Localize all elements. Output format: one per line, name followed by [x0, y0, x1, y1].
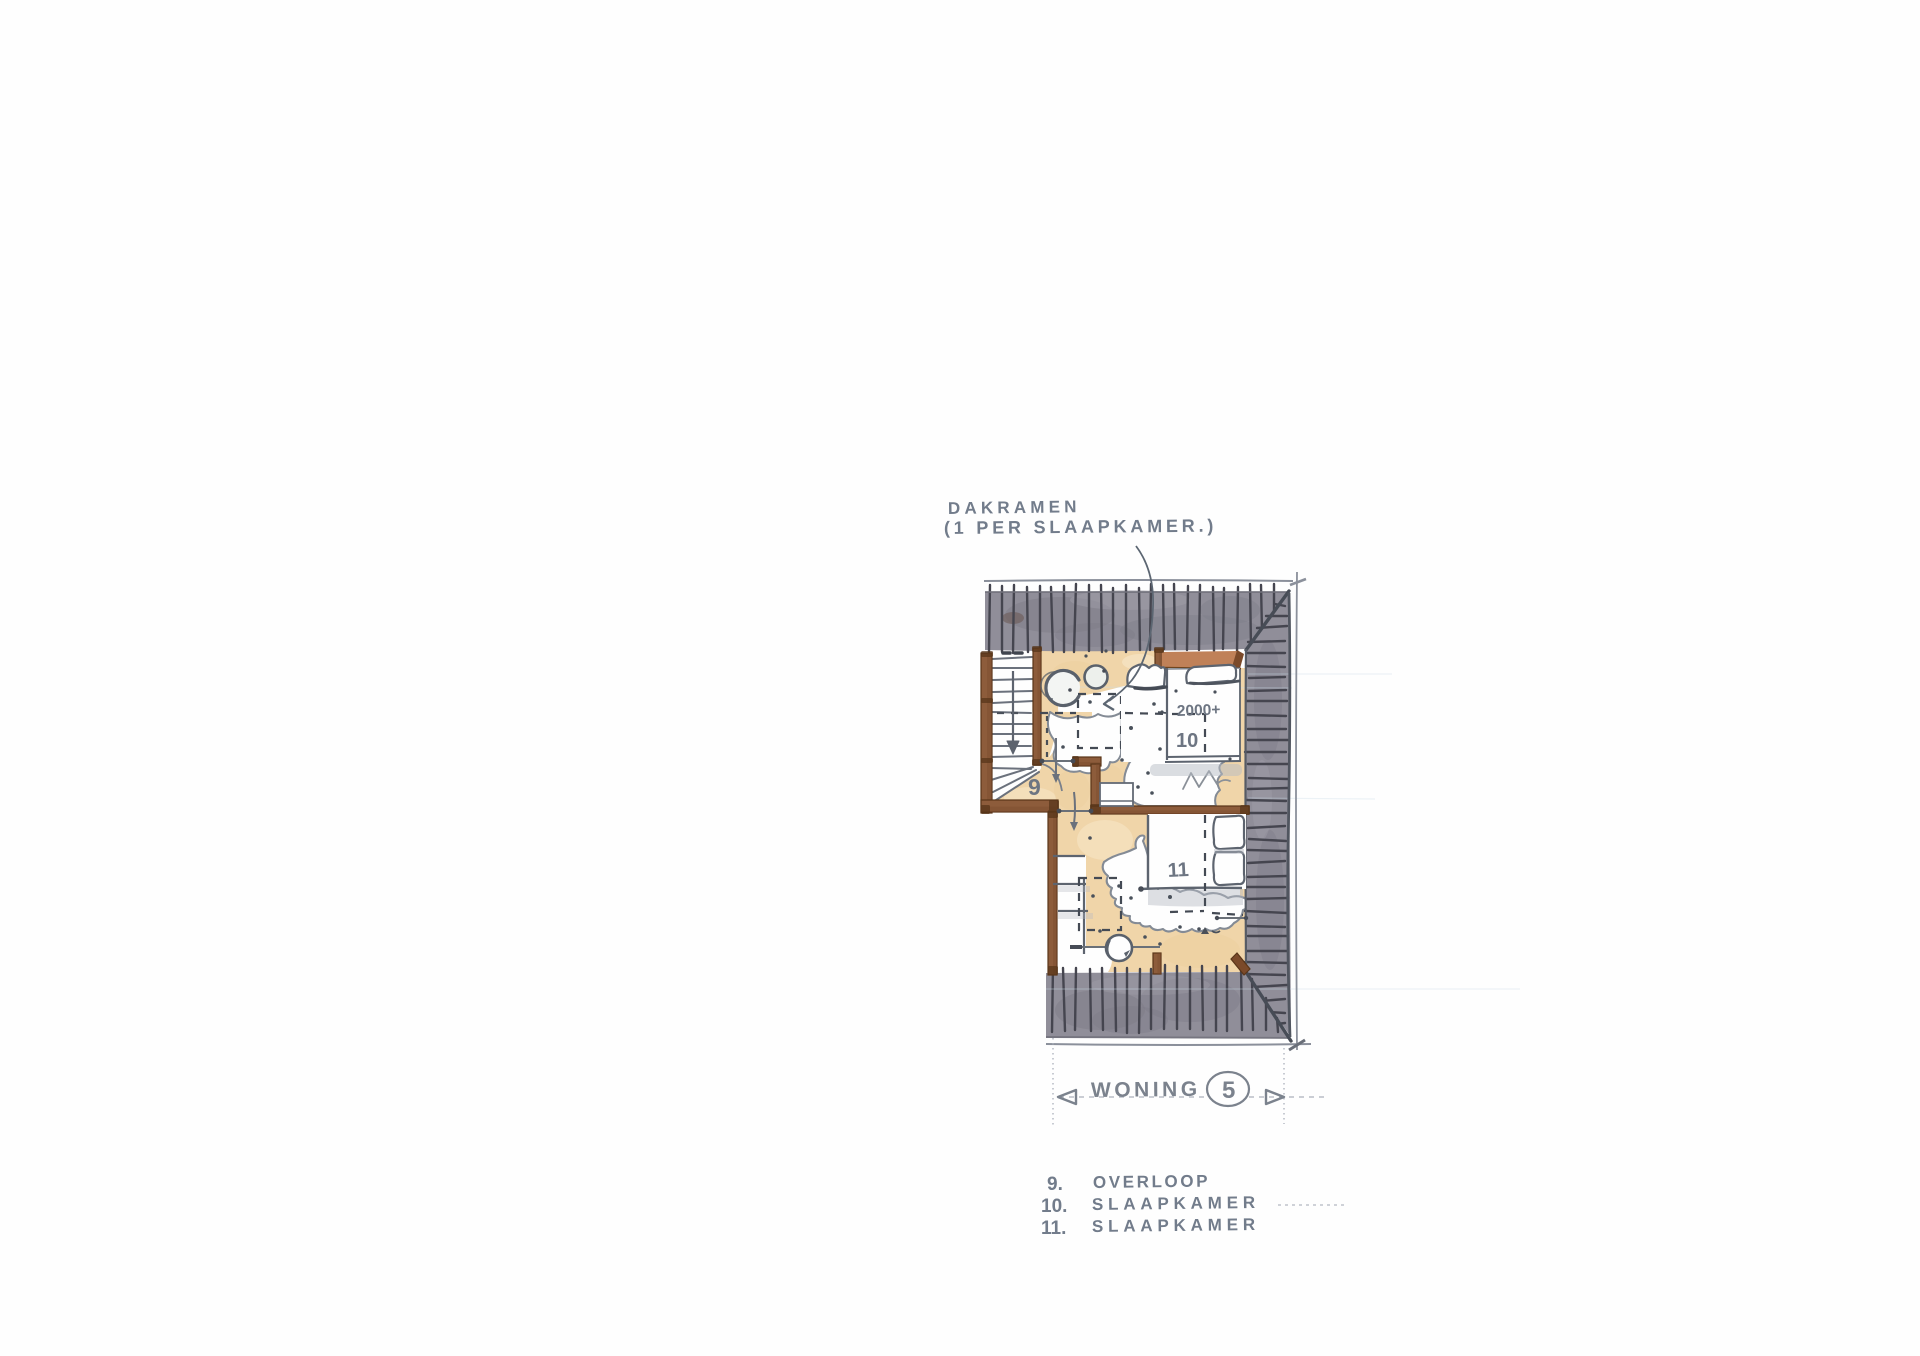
svg-text:(1 PER SLAAPKAMER.): (1 PER SLAAPKAMER.) [944, 516, 1217, 538]
svg-text:WONING: WONING [1091, 1078, 1201, 1102]
svg-text:2000+: 2000+ [1177, 701, 1221, 720]
svg-text:OVERLOOP: OVERLOOP [1093, 1172, 1210, 1192]
svg-text:10.: 10. [1041, 1196, 1067, 1217]
svg-text:9: 9 [1028, 774, 1041, 800]
svg-text:SLAAPKAMER: SLAAPKAMER [1092, 1215, 1260, 1236]
svg-text:11.: 11. [1041, 1218, 1066, 1239]
svg-text:SLAAPKAMER: SLAAPKAMER [1092, 1193, 1260, 1214]
svg-text:10: 10 [1176, 730, 1198, 752]
svg-text:9.: 9. [1047, 1174, 1063, 1195]
svg-text:DAKRAMEN: DAKRAMEN [948, 497, 1081, 518]
svg-text:5: 5 [1222, 1077, 1235, 1104]
svg-text:11: 11 [1167, 859, 1189, 882]
